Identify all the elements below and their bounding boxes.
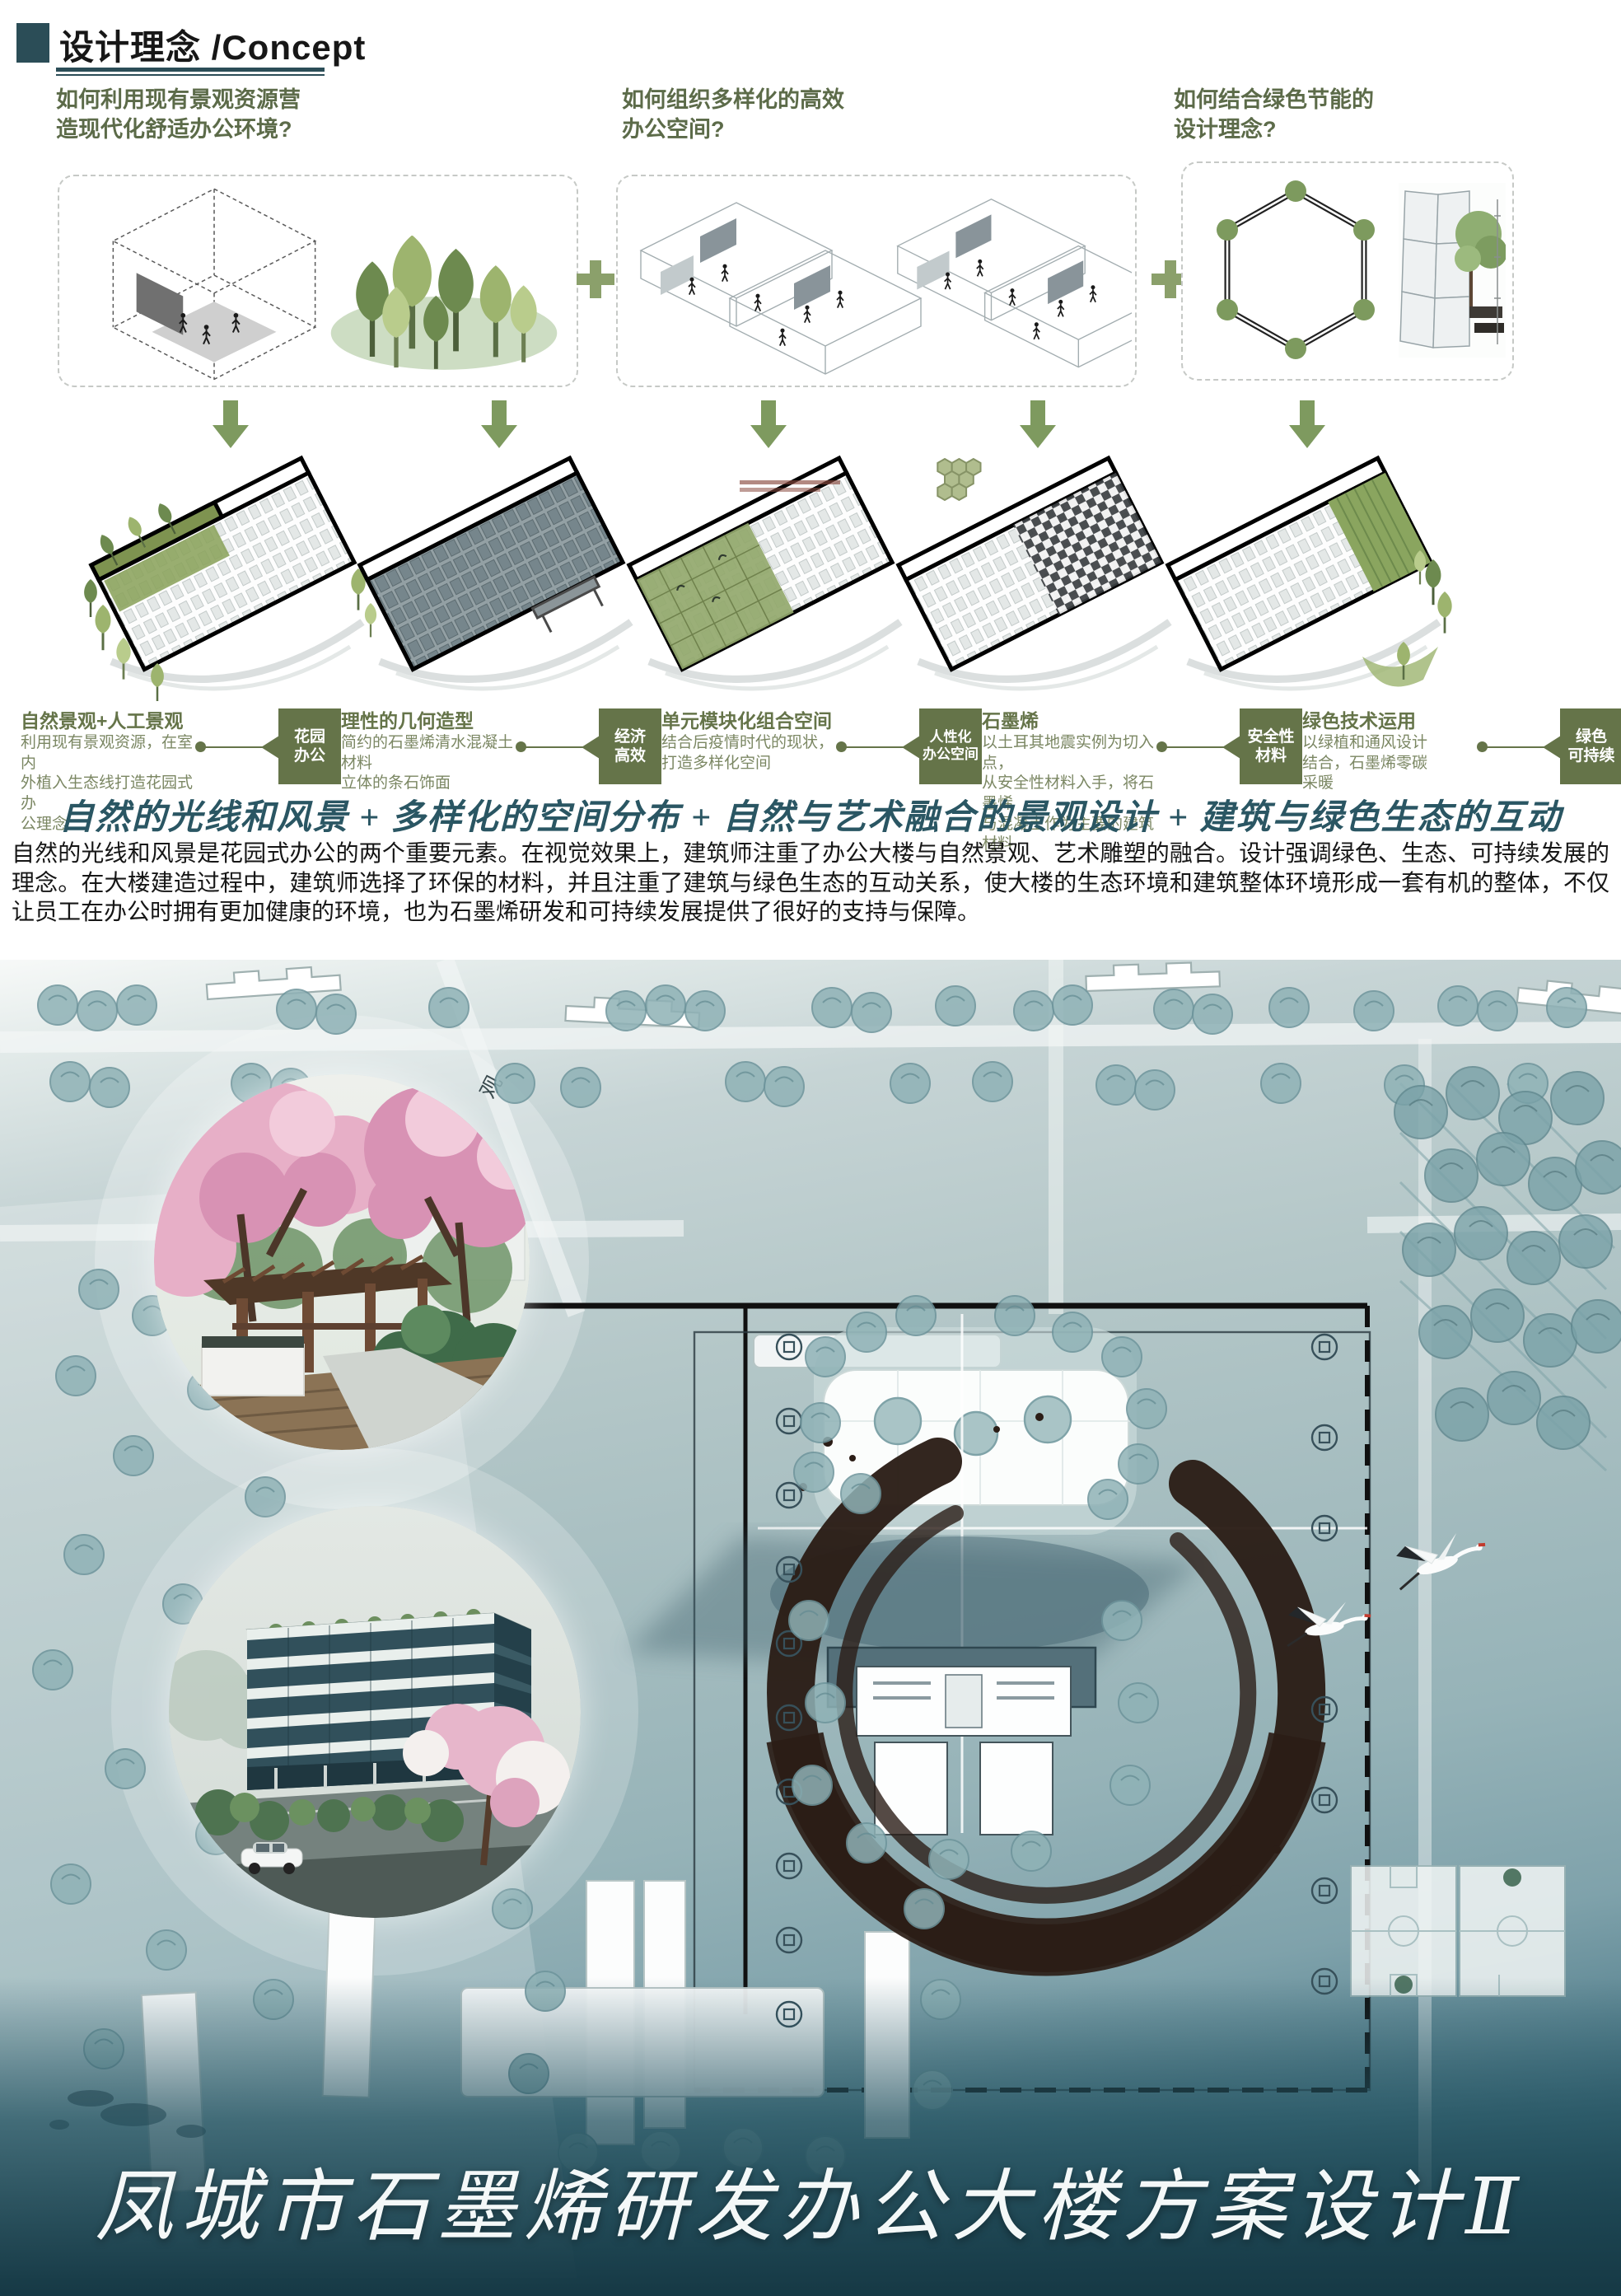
hexagon-molecule-icon (1201, 176, 1390, 366)
connector-line (1166, 746, 1224, 748)
diagram-box-office-modules (616, 175, 1137, 387)
caption-body: 结合后疫情时代的现状， 打造多样化空间 (661, 733, 847, 774)
axon-building-checker (885, 449, 1190, 704)
diagram-box-landscape (58, 175, 578, 387)
connector-line (1487, 746, 1544, 748)
diagram-box-graphene (1181, 161, 1514, 381)
header-underline-thin (56, 74, 325, 76)
badge-garden-office: 花园 办公 (278, 708, 341, 784)
badge-humanized: 人性化 办公空间 (919, 708, 982, 784)
concept-caption-garden: 自然景观+人工景观 利用现有景观资源，在室内 外植入生态线打造花园式办 公理念 … (21, 705, 341, 796)
caption-heading: 单元模块化组合空间 (661, 705, 839, 733)
plus-icon (577, 260, 614, 298)
connector-arrow-icon (261, 736, 279, 759)
connector-line (846, 746, 904, 748)
honeycomb-icon (937, 459, 980, 500)
caption-heading: 自然景观+人工景观 (21, 705, 198, 733)
crane-bird (1388, 1522, 1490, 1589)
concept-caption-geometry: 理性的几何造型 简约的石墨烯清水混凝土材料 立体的条石饰面 经济 高效 (341, 705, 661, 796)
green-facade-photo (1399, 183, 1506, 358)
connector-arrow-icon (1543, 736, 1561, 759)
down-arrow-icon (481, 400, 517, 448)
page-title: 设计理念 /Concept (59, 20, 366, 70)
axon-building-modules (616, 449, 921, 704)
badge-sustainable: 绿色 可持续 (1560, 708, 1621, 784)
down-arrow-icon (1020, 400, 1056, 448)
inset-photo-office-building (169, 1506, 581, 1918)
down-arrow-icon (1289, 400, 1325, 448)
connector-arrow-icon (582, 736, 600, 759)
down-arrow-icon (750, 400, 787, 448)
axon-building-concrete (347, 449, 652, 704)
caption-heading: 石墨烯 (982, 705, 1159, 733)
connector-arrow-icon (1222, 736, 1240, 759)
badge-safety: 安全性 材料 (1240, 708, 1302, 784)
caption-body: 简约的石墨烯清水混凝土材料 立体的条石饰面 (341, 733, 526, 794)
connector-arrow-icon (902, 736, 920, 759)
isometric-cube-diagram (82, 180, 346, 386)
axon-building-garden (78, 449, 383, 704)
caption-body: 以绿植和通风设计 结合，石墨烯零碳 采暖 (1302, 733, 1488, 794)
badge-economic: 经济 高效 (599, 708, 661, 784)
description-paragraph: 自然的光线和风景是花园式办公的两个重要元素。在视觉效果上，建筑师注重了办公大楼与… (12, 839, 1609, 927)
caption-heading: 绿色技术运用 (1302, 705, 1479, 733)
connector-line (526, 746, 583, 748)
question-landscape: 如何利用现有景观资源营 造现代化舒适办公环境? (56, 86, 301, 144)
axon-building-green-wall (1155, 449, 1460, 704)
question-green-energy: 如何结合绿色节能的 设计理念? (1174, 86, 1374, 144)
concept-caption-green-tech: 绿色技术运用 以绿植和通风设计 结合，石墨烯零碳 采暖 绿色 可持续 (1302, 705, 1621, 796)
connector-line (205, 746, 263, 748)
tree-cluster-diagram (325, 236, 563, 376)
office-modules-diagram (618, 176, 1132, 382)
inset-photo-pergola (154, 1074, 530, 1450)
header-underline (56, 68, 325, 72)
design-concept-poster: 设计理念 /Concept 如何利用现有景观资源营 造现代化舒适办公环境? 如何… (0, 0, 1621, 2296)
handwritten-formula: 自然的光线和风景 + 多样化的空间分布 + 自然与艺术融合的景观设计 + 建筑与… (0, 789, 1621, 839)
header-accent-square (16, 23, 49, 63)
down-arrow-icon (213, 400, 249, 448)
project-title: 凤城市石墨烯研发办公大楼方案设计Ⅱ (25, 2144, 1596, 2256)
caption-heading: 理性的几何造型 (341, 705, 518, 733)
question-office-space: 如何组织多样化的高效 办公空间? (622, 86, 844, 144)
concept-caption-graphene: 石墨烯 以土耳其地震实例为切入点， 从安全性材料入手，将石墨烯 与混凝土作为主要… (982, 705, 1302, 796)
concept-caption-modular: 单元模块化组合空间 结合后疫情时代的现状， 打造多样化空间 人性化 办公空间 (661, 705, 982, 796)
